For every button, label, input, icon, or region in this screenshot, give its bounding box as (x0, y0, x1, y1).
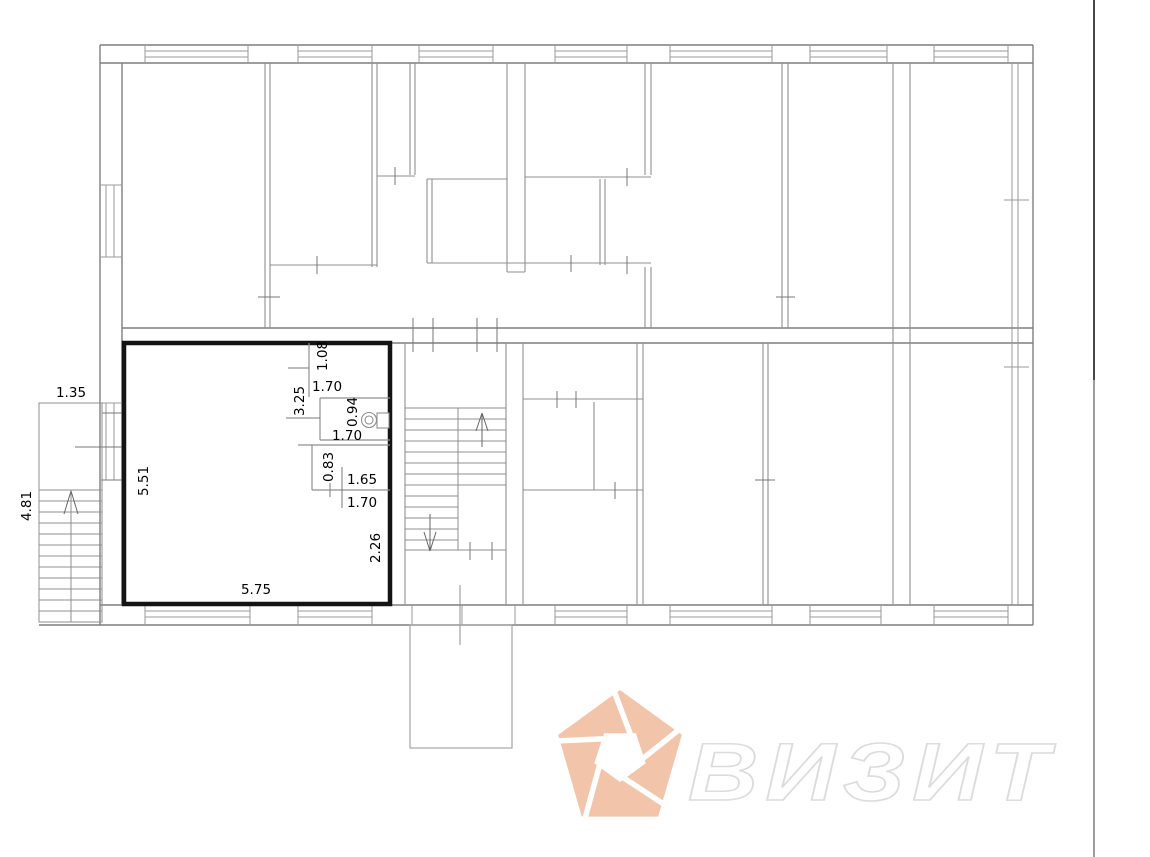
stair-treads (39, 490, 102, 622)
upper-partitions (265, 63, 910, 605)
exterior-walls (39, 45, 1033, 625)
toilet-icon (362, 413, 390, 429)
dimension-label-7: 3.25 (292, 386, 308, 416)
dimension-label-3: 5.51 (136, 466, 152, 496)
dimension-label-1: 1.35 (56, 385, 86, 401)
porch-outline (410, 625, 512, 748)
central-stairwell (405, 408, 506, 645)
watermark: ВИЗИТ (549, 684, 1056, 819)
bottom-windows (145, 605, 1008, 625)
dimension-label-5: 1.08 (315, 341, 331, 371)
dimension-label-6: 1.70 (312, 379, 342, 395)
stairwell-treads (405, 408, 506, 645)
floor-plan-page: 1.35 4.81 5.51 5.75 1.08 1.70 3.25 0.94 … (0, 0, 1150, 857)
dimension-labels: 1.35 4.81 5.51 5.75 1.08 1.70 3.25 0.94 … (19, 341, 384, 598)
dimension-label-2: 4.81 (19, 491, 35, 521)
agency-logo-icon (549, 684, 685, 819)
entry-porch (410, 625, 512, 748)
door-ticks (75, 167, 795, 560)
top-windows (145, 45, 1008, 63)
dimension-label-10: 0.83 (321, 452, 337, 482)
floor-plan-drawing: 1.35 4.81 5.51 5.75 1.08 1.70 3.25 0.94 … (0, 0, 1150, 857)
dimension-label-11: 1.65 (347, 472, 377, 488)
stair-down-arrow-icon (424, 514, 436, 551)
interior-walls-upper (265, 63, 910, 605)
left-windows (100, 185, 122, 480)
windows (100, 45, 1029, 625)
dimension-label-13: 2.26 (368, 533, 384, 563)
outer-wall-lines (39, 45, 1033, 625)
dimension-label-12: 1.70 (347, 495, 377, 511)
dimension-label-9: 1.70 (332, 428, 362, 444)
tick-marks (75, 167, 795, 560)
left-staircase (39, 403, 102, 622)
watermark-text: ВИЗИТ (688, 727, 1056, 818)
dimension-label-8: 0.94 (345, 397, 361, 427)
right-wall (1004, 63, 1029, 605)
dimension-label-4: 5.75 (241, 582, 271, 598)
